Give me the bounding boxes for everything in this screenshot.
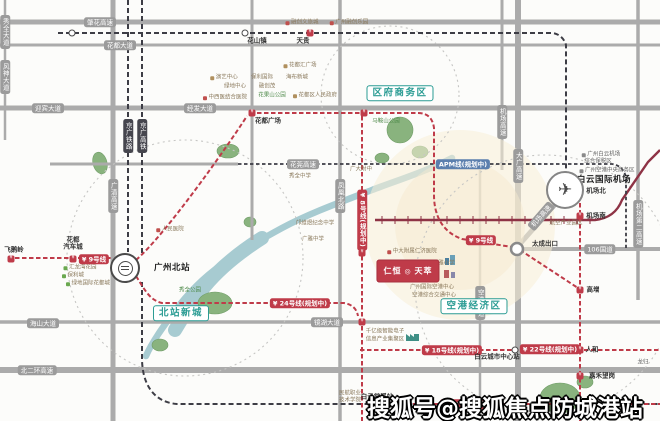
poi-label: 龙归 [637, 360, 648, 366]
station-label: 花山镇 [247, 37, 267, 44]
poi-icon [387, 250, 391, 254]
poi-label: 信息产业集聚区 [366, 337, 405, 343]
poi-label: 保利国际 [251, 75, 273, 81]
poi-icon [62, 274, 66, 278]
station-label: 天贵 [297, 37, 310, 44]
road-label: 花都大道 [104, 40, 136, 50]
poi-label: 航空产业园区 [549, 221, 582, 227]
metro-line-label: ¥ 24号线(规划中) [270, 298, 330, 308]
road-label: 镜湖大道 [311, 317, 343, 327]
poi-icon [579, 169, 583, 173]
poi-label: 花都汇广场 [283, 63, 316, 69]
poi-icon [285, 21, 289, 25]
poi-label: 中大附属仁济医院 [387, 249, 437, 255]
project-logo-icon: ◎ [404, 267, 411, 275]
road-label: 迎宾大道 [32, 103, 64, 113]
poi-label: 海布新城 [286, 75, 308, 81]
airplane-glyph: ✈ [558, 182, 572, 199]
road-label: 106国道 [584, 244, 615, 254]
poi-icon [203, 96, 207, 100]
map-base [0, 0, 660, 421]
poi-label: 广大附中 [350, 167, 372, 173]
poi-label: 综合保税区 [584, 159, 612, 165]
north-station-label: 广州北站 [154, 264, 190, 274]
junction-circle [511, 243, 523, 255]
poi-icon [66, 282, 70, 286]
road-label: 广清高速 [108, 179, 118, 213]
road-label: 经发大道 [184, 103, 216, 113]
railway-station-icon [110, 253, 140, 283]
project-marker: 仁恒 ◎ 天萃 [376, 260, 439, 283]
project-name-right: 天萃 [415, 266, 433, 277]
watermark: 搜狐号@搜狐焦点防城港站 [367, 389, 643, 421]
metro-line-label: ¥ 9号线 [79, 254, 109, 264]
road-label: 风神大道 [0, 60, 10, 94]
poi-label: 广州空港中央商务区 [579, 168, 634, 174]
station-label: 人和 [586, 346, 599, 353]
zone-label: 空港经济区 [440, 298, 507, 314]
airport-label: 白云国际机场 [577, 176, 631, 186]
poi-label: 广州国际空港中心 [410, 285, 454, 291]
poi-label: 广州融创乐园 [330, 20, 369, 26]
metro-line-label: ¥ 8号线(规划中) [357, 190, 367, 251]
station-label: 太成出口 [532, 240, 558, 247]
metro-line-label: ¥ 9号线 [466, 235, 496, 245]
airport-icon: ✈ [546, 171, 584, 209]
factory-icon [406, 334, 419, 341]
metro-station-badge: ¥ [577, 287, 584, 294]
poi-label: 秀全公园 [179, 288, 201, 294]
poi-label: 保利城 [62, 273, 84, 279]
road-label: 肇花高速 [84, 17, 116, 27]
road-label: 凤凰北路 [335, 179, 345, 213]
road-label: 机场高速 [497, 105, 507, 139]
poi-label: 绿地国际花都城 [66, 281, 110, 287]
metro-line-label: ¥ 22号线(规划中) [520, 344, 580, 354]
metro-line-label: APM线(规划中) [436, 159, 490, 169]
rail-label: 京广高铁 [137, 119, 147, 153]
poi-label: 马鞍山公园 [372, 119, 400, 125]
station-label: 白云城市中心站 [474, 353, 520, 360]
metro-line-label: ¥ 18号线(规划中) [422, 345, 482, 355]
poi-label: 融创茂 [259, 84, 276, 90]
road-label: 北二环高速 [18, 365, 57, 375]
metro-station-badge: ¥ [577, 373, 584, 380]
metro-station-badge: ¥ [361, 110, 368, 117]
metro-station-badge: ¥ [359, 319, 366, 326]
poi-label: 中西医结合医院 [203, 95, 247, 101]
metro-station-badge: ¥ [577, 347, 584, 354]
poi-icon [330, 21, 334, 25]
poi-label: 汇龙湾花园 [63, 265, 96, 271]
rail-logo-icon [118, 261, 133, 276]
poi-label: 花果山公园 [258, 93, 286, 99]
station-label: 花都 汽车城 [63, 237, 83, 252]
poi-icon [210, 76, 214, 80]
poi-label: 广雅中学 [302, 237, 324, 243]
rail-label: 京广铁路 [123, 119, 133, 153]
poi-label: 技术学院 [339, 398, 361, 404]
road-label: 花莞高速 [287, 159, 319, 169]
road-label: 秀全大道 [0, 15, 10, 49]
station-label: 机场南 [586, 212, 606, 219]
road-label: 大广高速 [513, 149, 523, 183]
poi-label: 融创文旅城 [285, 20, 318, 26]
poi-icon [63, 266, 67, 270]
poi-label: 邝维煜纪念中学 [296, 221, 335, 227]
project-name-left: 仁恒 [383, 266, 401, 277]
metro-station-badge: ¥ [359, 250, 366, 257]
station-label: 花都广场 [255, 117, 281, 124]
station-label: 高增 [587, 286, 600, 293]
poi-label: 民航职业 [339, 391, 361, 397]
poi-label: 广州白云机场 [582, 152, 621, 158]
poi-label: 绿地中心 [224, 84, 246, 90]
zone-label: 北站新城 [153, 305, 209, 321]
poi-label: 秀全中学 [289, 174, 311, 180]
road-label: 机场第二高速 [633, 200, 643, 248]
poi-icon [283, 64, 287, 68]
zone-label: 区府商务区 [366, 85, 433, 101]
poi-icon [156, 228, 160, 232]
location-map: ✈ 白云国际机场 广州北站 仁恒 ◎ 天萃 搜狐号@搜狐焦点防城港站 肇花高速花… [0, 0, 660, 421]
poi-label: 人民医院 [156, 227, 184, 233]
road-grid [0, 0, 660, 421]
metro-station-badge: ¥ [577, 213, 584, 220]
station-label: 机场北 [586, 187, 606, 194]
station-label: 飞鹅岭 [4, 246, 24, 253]
station-circle-icon [69, 30, 76, 37]
metro-station-badge: ¥ [8, 256, 15, 263]
poi-icon [293, 94, 297, 98]
poi-label: 千亿级智能电子 [366, 329, 405, 335]
road-label: 海山大道 [27, 318, 59, 328]
metro-station-badge: ¥ [70, 256, 77, 263]
poi-icon [582, 153, 586, 157]
poi-label: 演艺中心 [210, 75, 238, 81]
station-label: 嘉禾望岗 [589, 372, 615, 379]
poi-label: 花都区人民政府 [293, 93, 337, 99]
